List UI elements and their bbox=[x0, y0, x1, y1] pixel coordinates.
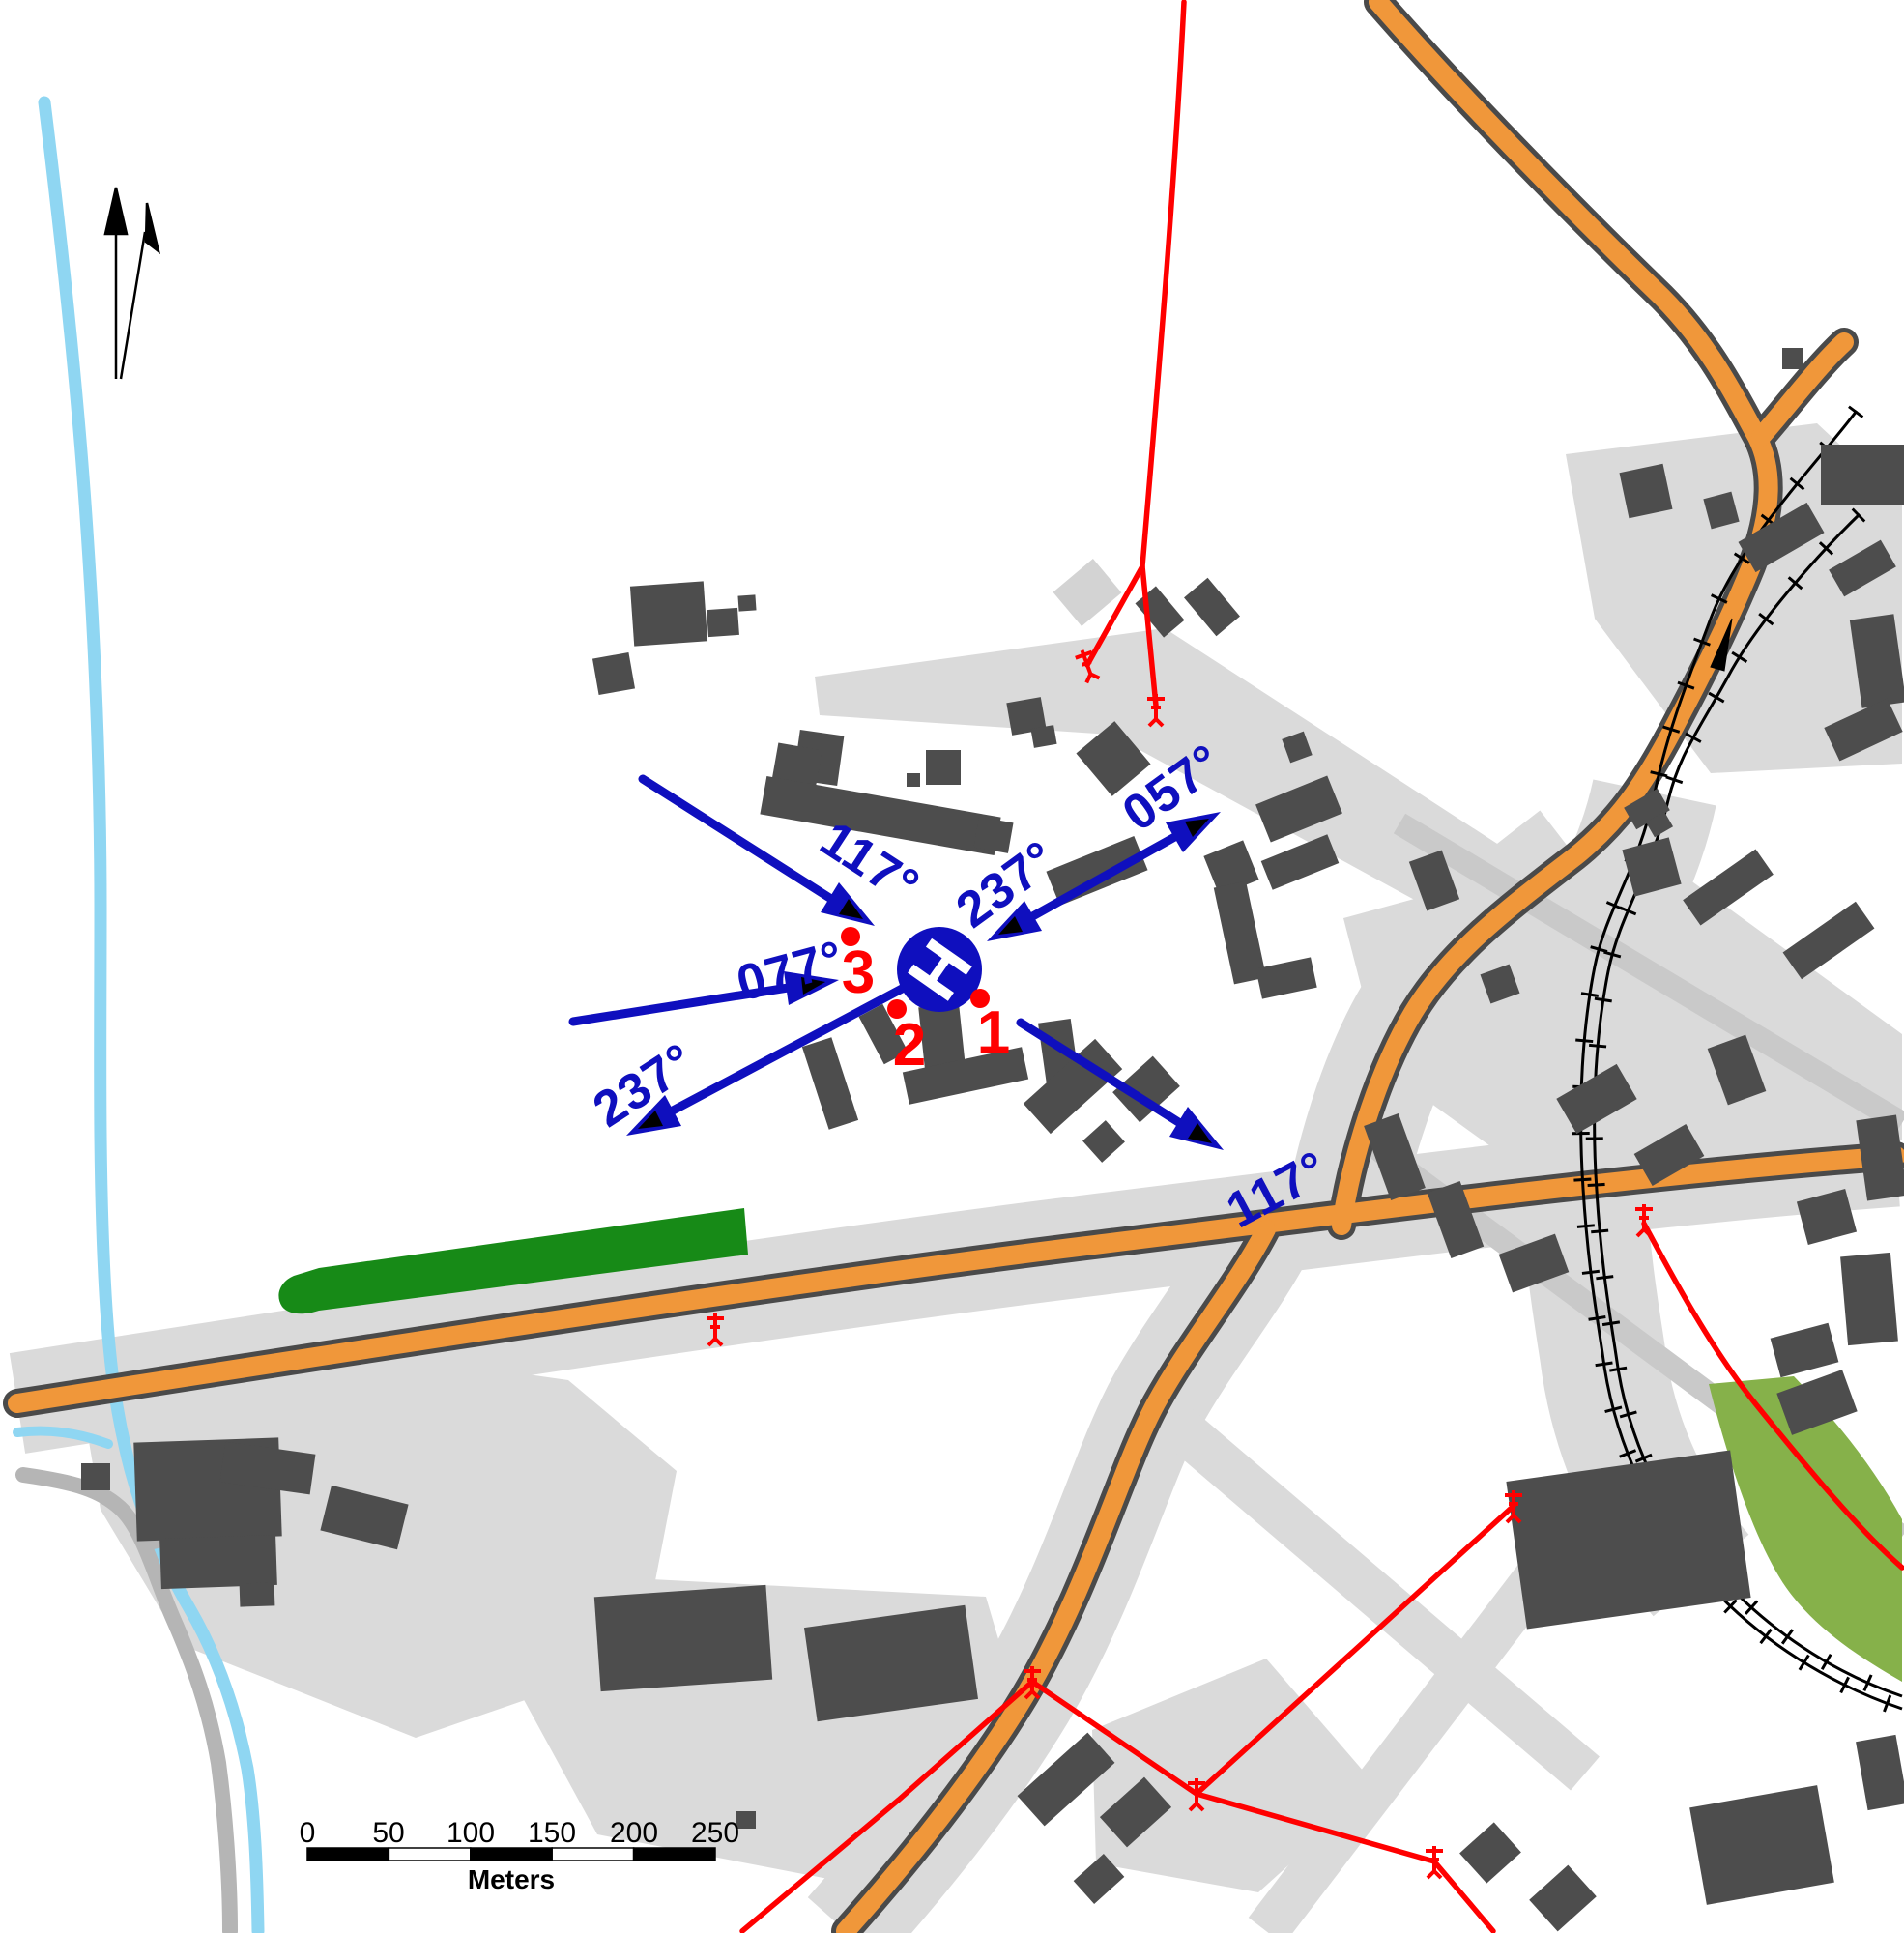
survey-point-1-label: 1 bbox=[977, 999, 1010, 1066]
survey-point-3-label: 3 bbox=[842, 939, 875, 1006]
scale-tick-50: 50 bbox=[372, 1817, 404, 1849]
map-svg: 117° 077° 237° 237° 057° 117° H 3 2 1 0 … bbox=[0, 0, 1904, 1933]
survey-point-2-label: 2 bbox=[893, 1012, 926, 1079]
scale-bar-segments bbox=[307, 1848, 715, 1861]
power-line-north bbox=[1087, 2, 1184, 665]
scale-tick-250: 250 bbox=[691, 1817, 739, 1849]
north-arrow bbox=[105, 188, 159, 379]
scale-tick-200: 200 bbox=[610, 1817, 658, 1849]
scale-tick-150: 150 bbox=[528, 1817, 576, 1849]
scale-tick-0: 0 bbox=[300, 1817, 316, 1849]
departure-arrow-sw-line bbox=[660, 988, 904, 1117]
true-north-head bbox=[105, 188, 127, 234]
scale-unit-label: Meters bbox=[468, 1864, 555, 1894]
map-canvas: 117° 077° 237° 237° 057° 117° H 3 2 1 0 … bbox=[0, 0, 1904, 1933]
scale-tick-100: 100 bbox=[447, 1817, 495, 1849]
magnetic-north-half-head bbox=[146, 203, 159, 251]
bearing-label-077: 077° bbox=[731, 931, 850, 1013]
